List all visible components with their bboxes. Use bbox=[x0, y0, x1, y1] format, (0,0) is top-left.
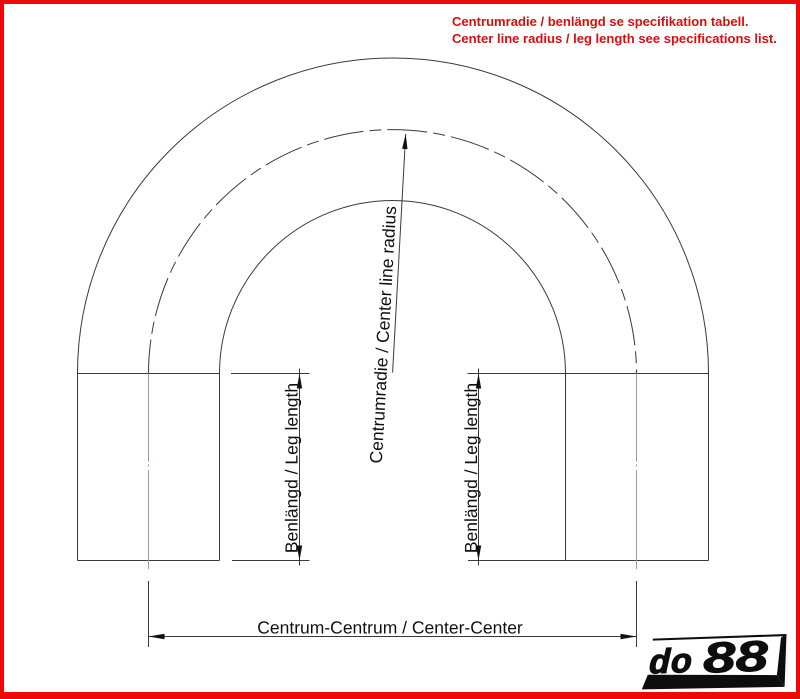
svg-text:Benlängd / Leg length: Benlängd / Leg length bbox=[282, 383, 302, 553]
svg-text:do: do bbox=[649, 642, 694, 682]
svg-text:Benlängd / Leg length: Benlängd / Leg length bbox=[461, 383, 481, 553]
svg-text:Centrum-Centrum / Center-Cente: Centrum-Centrum / Center-Center bbox=[257, 618, 523, 638]
svg-text:88: 88 bbox=[702, 632, 769, 682]
